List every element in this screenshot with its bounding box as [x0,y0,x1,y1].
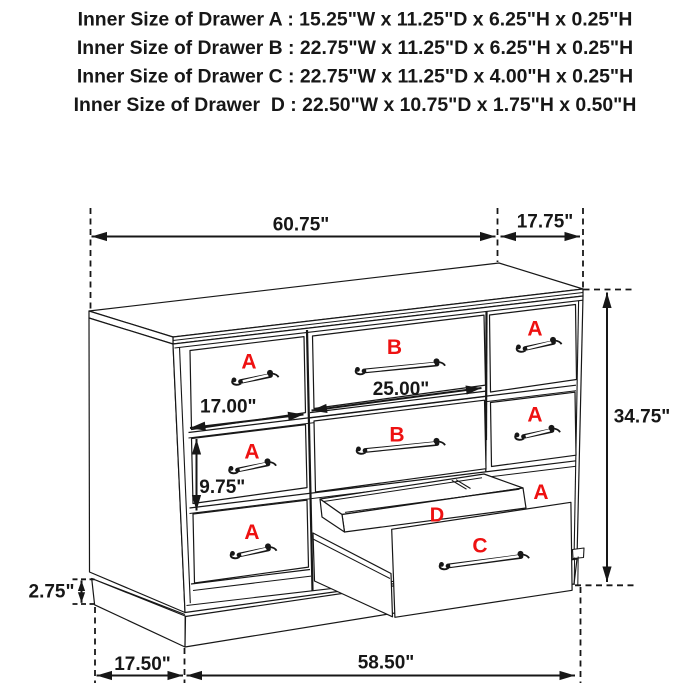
svg-text:2.75": 2.75" [29,582,75,603]
svg-text:Inner Size of Drawer C : 22.75: Inner Size of Drawer C : 22.75"W x 11.25… [77,66,633,88]
svg-text:A: A [527,318,542,341]
svg-text:C: C [472,534,487,557]
svg-text:Inner Size of Drawer B : 22.75: Inner Size of Drawer B : 22.75"W x 11.25… [77,37,633,59]
svg-text:34.75": 34.75" [614,406,671,427]
svg-text:25.00": 25.00" [373,379,430,400]
svg-text:17.00": 17.00" [200,396,257,417]
svg-text:17.75": 17.75" [517,211,574,232]
svg-text:A: A [244,441,259,464]
svg-text:A: A [533,481,548,504]
svg-text:58.50": 58.50" [358,653,415,674]
svg-text:9.75": 9.75" [199,477,245,498]
svg-text:17.50": 17.50" [114,654,171,675]
svg-text:B: B [387,336,402,359]
svg-text:Inner Size of Drawer D : 22.5: Inner Size of Drawer D : 22.50"W x 10.75… [74,94,637,116]
svg-text:D: D [430,505,444,527]
svg-text:Inner Size of Drawer A : 15.25: Inner Size of Drawer A : 15.25"W x 11.25… [78,9,633,31]
svg-text:A: A [527,403,542,426]
svg-text:B: B [389,423,404,446]
svg-text:A: A [244,521,259,544]
svg-text:60.75": 60.75" [273,214,330,235]
svg-text:A: A [241,351,256,374]
